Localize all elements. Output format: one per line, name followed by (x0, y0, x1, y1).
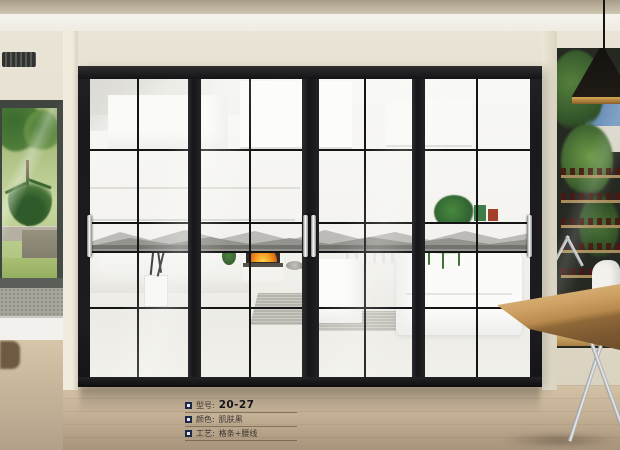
door-handle (87, 215, 92, 257)
spec-row-model: 型号: 20-27 (185, 401, 297, 413)
spec-value: 20-27 (219, 401, 255, 410)
garden-view (2, 108, 57, 278)
left-cabinet (0, 316, 63, 340)
white-armchair (312, 259, 362, 323)
check-square-inner (187, 432, 190, 435)
wall-cabinet (240, 81, 352, 149)
showroom-photo: 型号: 20-27 颜色: 肌肤黑 工艺: 格条+腰线 (0, 0, 620, 450)
pendant-lamp-cord (603, 0, 605, 54)
check-square-icon (185, 402, 192, 409)
spec-value: 肌肤黑 (219, 415, 243, 424)
spec-label: 工艺: (196, 429, 215, 438)
door-handle (303, 215, 308, 257)
ceiling-soffit (0, 14, 620, 31)
air-vent (2, 52, 36, 67)
muntin-vertical (137, 79, 139, 377)
door-floor-reflection (80, 387, 540, 413)
wall-column (63, 31, 78, 390)
white-vase (144, 275, 168, 307)
panel-stile (188, 70, 201, 383)
wall-cabinet (386, 99, 472, 147)
stone-bench (0, 288, 63, 316)
check-square-icon (185, 430, 192, 437)
plant-strand (442, 253, 444, 269)
window-sill (0, 278, 63, 288)
check-square-inner (187, 418, 190, 421)
doormat (0, 341, 20, 369)
ceiling-band (0, 0, 620, 14)
wall-pillar (542, 31, 557, 390)
spec-row-color: 颜色: 肌肤黑 (185, 415, 297, 427)
door-handle (527, 215, 532, 257)
sliding-glass-door (78, 66, 542, 387)
spec-label: 型号: (196, 401, 215, 410)
lamp-brass-rim (572, 97, 620, 104)
check-square-inner (187, 404, 190, 407)
muntin-vertical (364, 79, 366, 377)
wall-cabinet (108, 95, 228, 151)
table-shadow (500, 432, 620, 448)
spec-row-craft: 工艺: 格条+腰线 (185, 429, 297, 441)
panel-stile (412, 70, 425, 383)
spec-value: 格条+腰线 (219, 429, 258, 438)
window-reflection (2, 108, 57, 278)
spec-label: 颜色: (196, 415, 215, 424)
muntin-vertical (476, 79, 478, 377)
check-square-icon (185, 416, 192, 423)
red-box (488, 209, 498, 221)
product-spec-block: 型号: 20-27 颜色: 肌肤黑 工艺: 格条+腰线 (185, 401, 305, 443)
door-top-rail (78, 66, 542, 79)
door-handle (311, 215, 316, 257)
door-bottom-rail (78, 377, 542, 387)
muntin-vertical (249, 79, 251, 377)
